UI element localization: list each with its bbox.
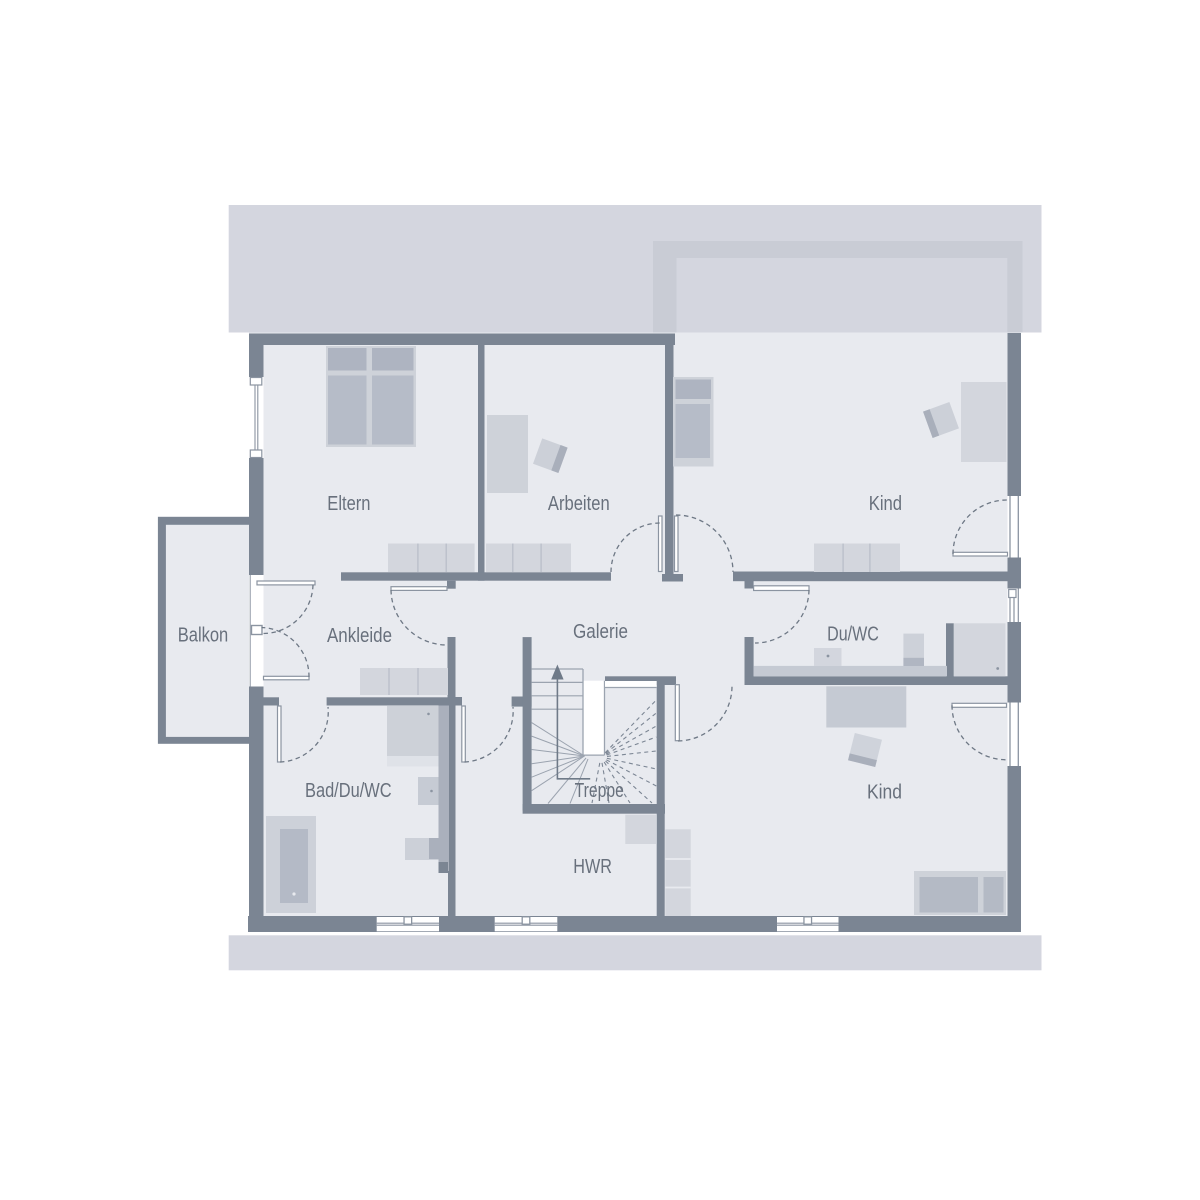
svg-text:Arbeiten: Arbeiten — [548, 493, 610, 515]
svg-text:Ankleide: Ankleide — [327, 625, 392, 647]
svg-text:Galerie: Galerie — [573, 621, 628, 643]
svg-text:Balkon: Balkon — [178, 624, 229, 646]
svg-text:Bad/Du/WC: Bad/Du/WC — [305, 780, 392, 802]
svg-text:Eltern: Eltern — [327, 493, 370, 515]
svg-text:Treppe: Treppe — [575, 780, 624, 802]
svg-text:Kind: Kind — [867, 781, 902, 803]
svg-text:HWR: HWR — [573, 856, 612, 878]
svg-text:Kind: Kind — [869, 493, 902, 515]
svg-text:Du/WC: Du/WC — [827, 623, 879, 645]
